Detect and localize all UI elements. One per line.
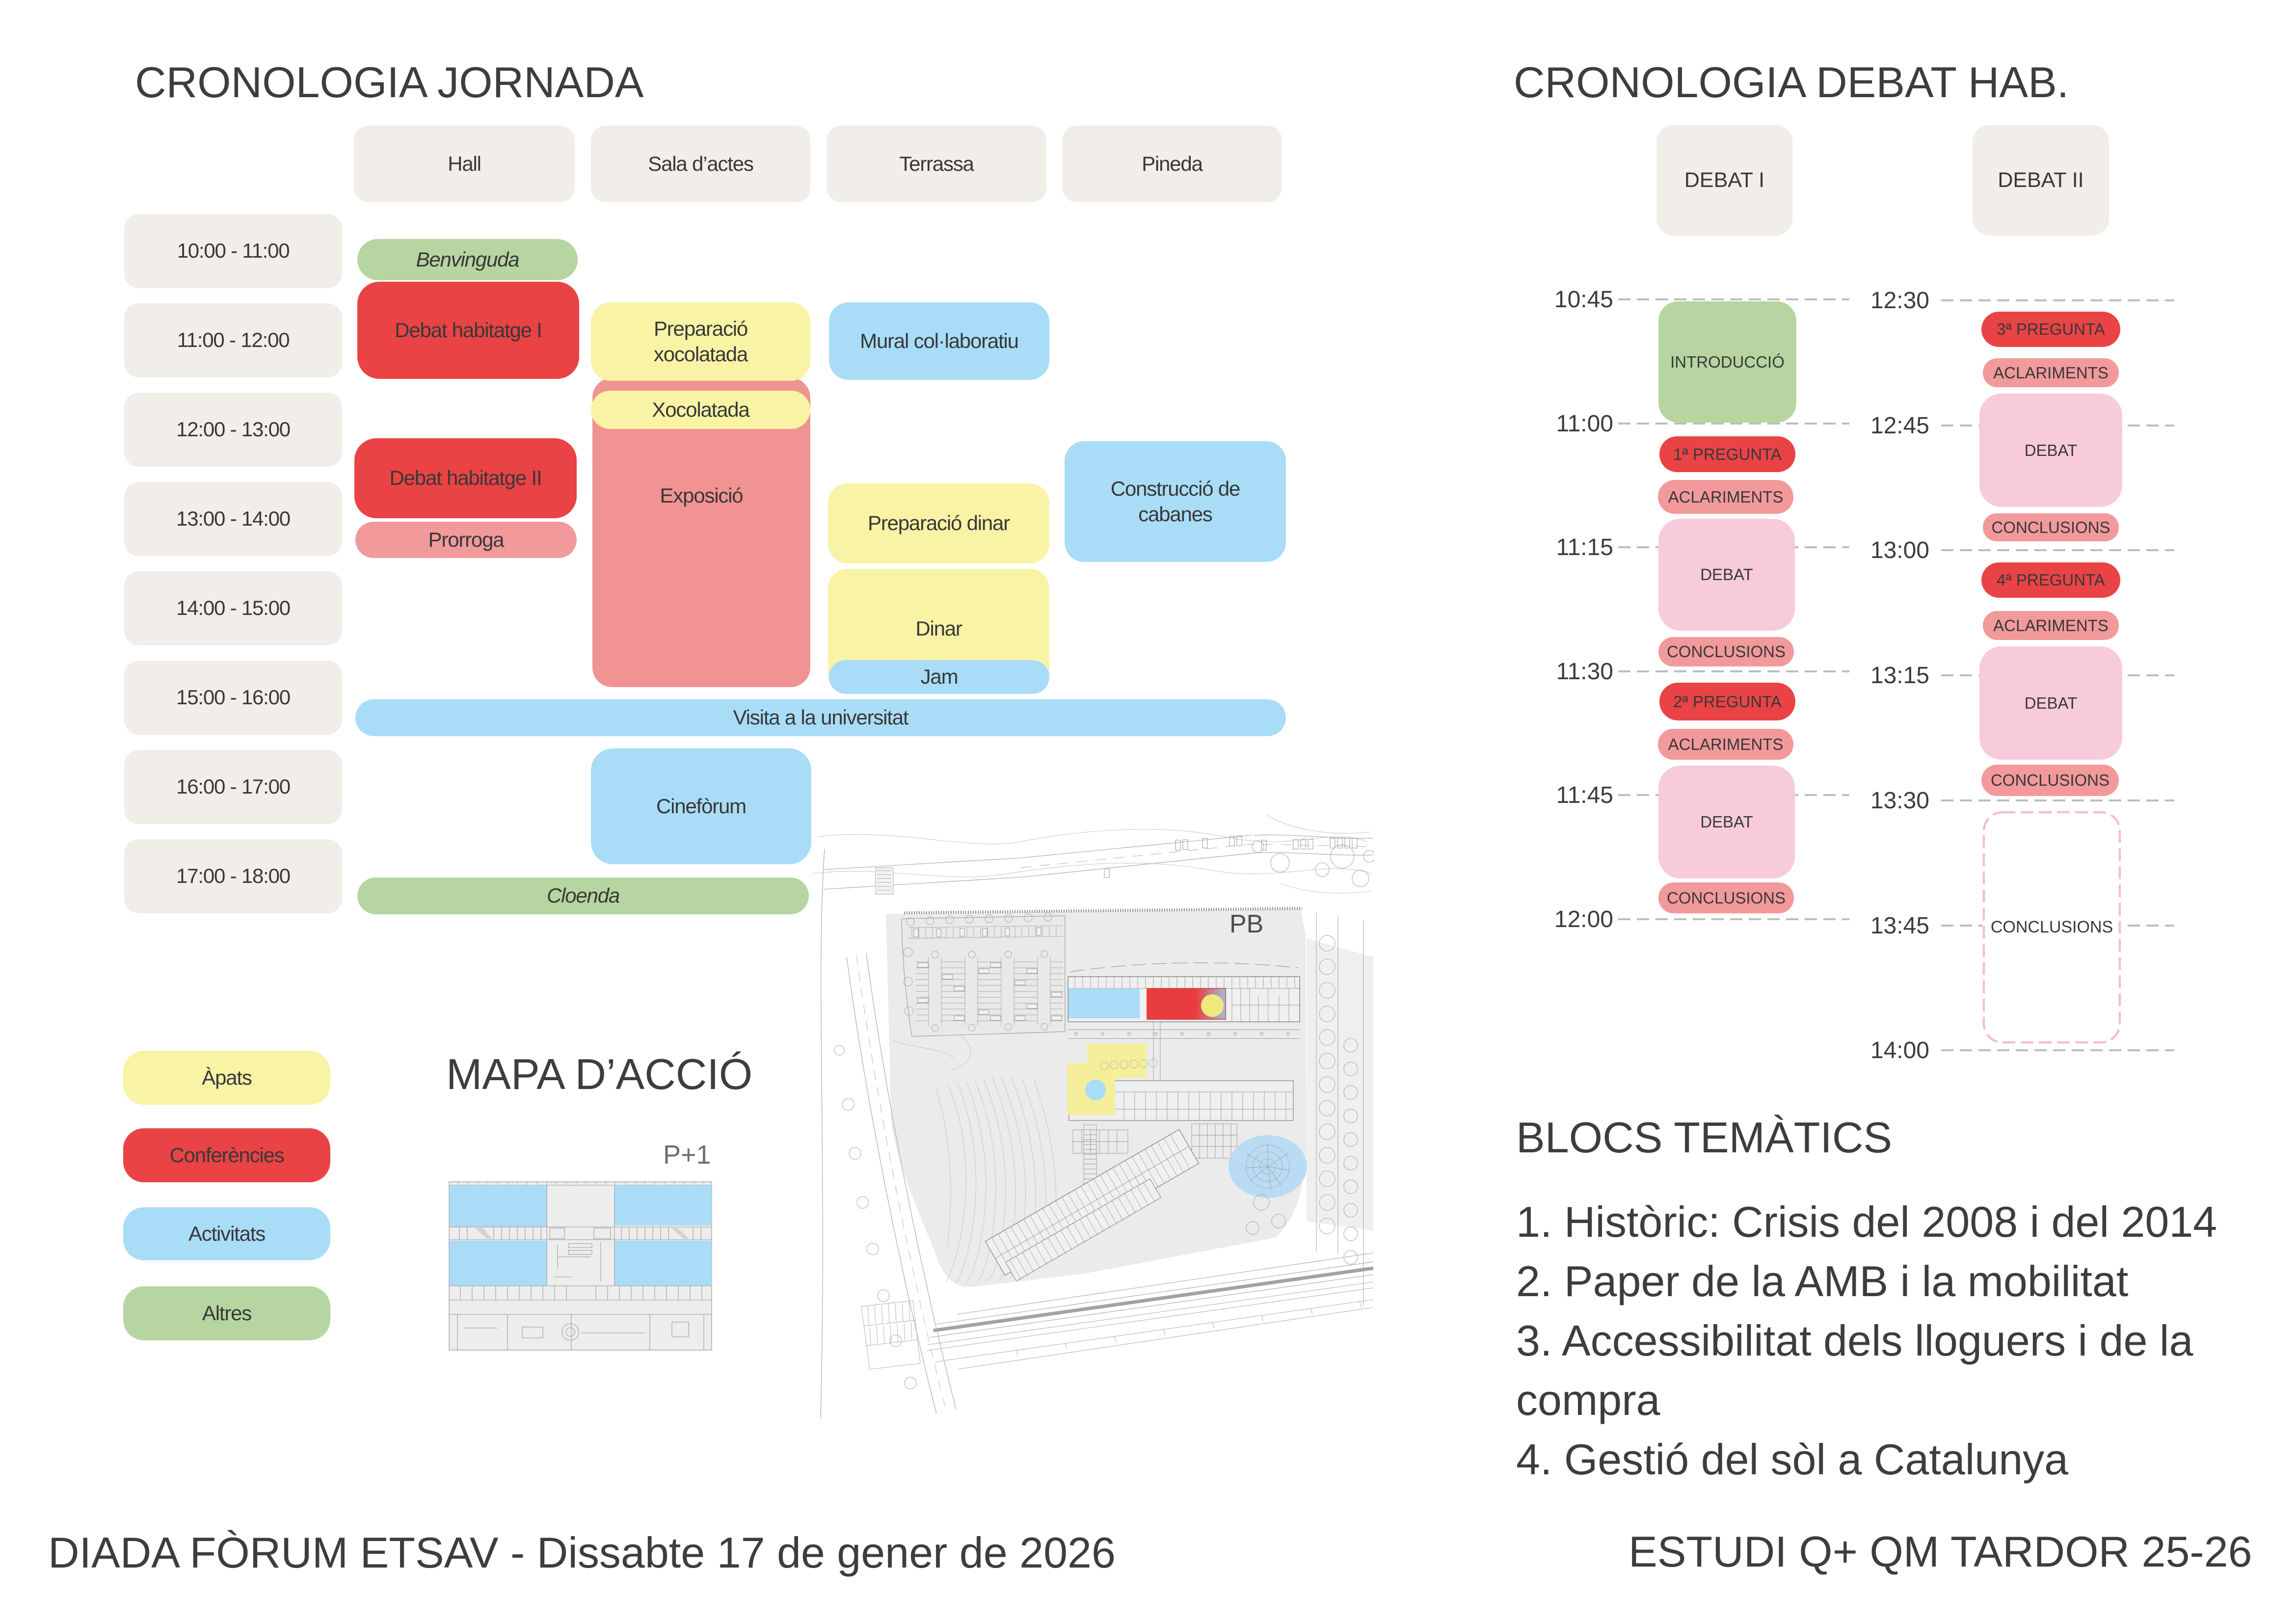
svg-text:PB: PB — [1229, 910, 1263, 938]
